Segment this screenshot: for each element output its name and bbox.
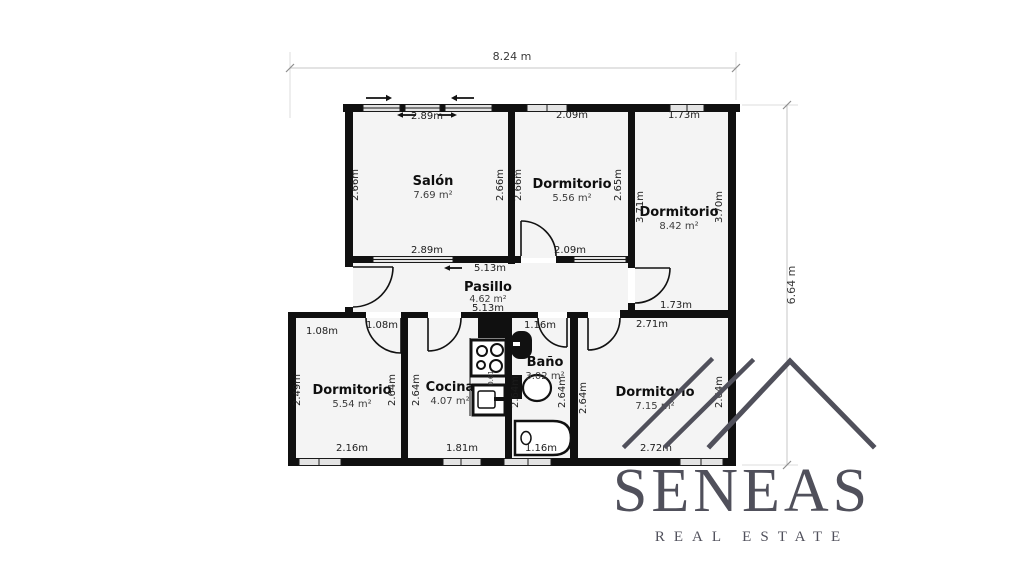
dim-label: 2.64m [510,376,521,408]
room-name: Pasillo [464,280,512,295]
dim-label: 2.89m [411,245,443,256]
brand-tagline: REAL ESTATE [655,529,849,545]
room-area: 5.56 m² [552,193,591,204]
room-area: 7.69 m² [413,190,452,201]
dim-label: 0.61 [487,370,495,386]
dim-label: 5.13m [472,303,504,314]
window-slide-arrow-right-icon [366,95,392,101]
room-name: Dormitorio [532,177,611,192]
window-slide-arrow-left-icon [451,95,474,101]
dim-label: 2.65m [613,169,624,201]
dim-label: 2.09m [556,110,588,121]
dim-label: 2.49m [292,374,303,406]
dormitorio-bl-window [299,459,341,466]
room-name: Dormitorio [639,205,718,220]
cocina-window [443,459,481,466]
dim-label: 2.66m [350,169,361,201]
room-area: 8.42 m² [659,221,698,232]
dim-label: 2.66m [495,169,506,201]
dim-label: 1.73m [660,300,692,311]
dim-label: 5.13m [474,263,506,274]
dim-label: 1.73m [668,110,700,121]
floor-plan-page: 8.24 m 6.64 m Salón 7.69 m² 2.89m 2.89m … [0,0,1024,576]
salon-pasillo-partition [373,257,453,263]
kitchen-sink-icon [473,385,505,415]
room-area: 4.07 m² [430,396,469,407]
dim-label: 1.08m [306,326,338,337]
faucet [494,397,504,401]
dim-label: 2.64m [557,376,568,408]
dim-label: 3.70m [714,191,725,223]
dim-label: 1.08m [366,320,398,331]
dim-label: 1.16m [525,443,557,454]
overall-height-dimension: 6.64 m [742,101,798,469]
dim-label: 2.64m [387,374,398,406]
dim-label: 2.64m [411,374,422,406]
room-name: Salón [413,174,454,189]
dim-label: 2.71m [636,319,668,330]
room-name: Cocina [426,380,475,395]
room-area: 5.54 m² [332,399,371,410]
dim-label: 1.81m [446,443,478,454]
floor-plan-canvas: 8.24 m 6.64 m Salón 7.69 m² 2.89m 2.89m … [0,0,1024,576]
dim-label: 2.09m [554,245,586,256]
room-name: Dormitorio [312,383,391,398]
dim-label: 2.16m [336,443,368,454]
dim-label: 2.64m [578,382,589,414]
dim-label: 1.16m [524,320,556,331]
overall-height-label: 6.64 m [785,266,798,305]
dim-label: 3.71m [635,191,646,223]
dim-label: 2.66m [513,169,524,201]
dim-label: 2.89m [411,111,443,122]
overall-width-label: 8.24 m [493,50,532,63]
bano-window [504,459,551,466]
pasillo-partition-right [574,257,626,263]
brand-name: SENEAS [613,457,871,525]
room-name: Baño [527,355,564,370]
salon-window-left [363,105,400,112]
